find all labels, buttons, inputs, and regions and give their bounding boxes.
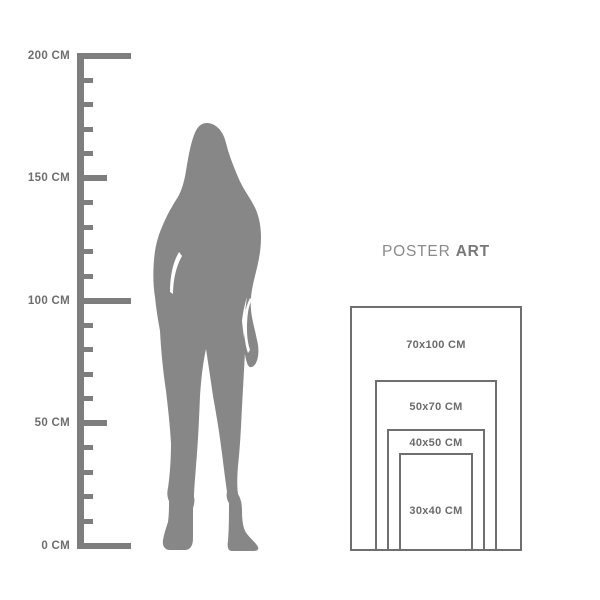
poster-size-label-30x40: 30x40 CM [399, 504, 472, 519]
poster-frame-30x40 [399, 453, 472, 551]
ruler-tick-120cm [77, 249, 93, 254]
ruler-tick-180cm [77, 102, 93, 107]
brand-wordmark: POSTER ART [336, 243, 536, 260]
ruler-tick-0cm [77, 543, 131, 549]
ruler-tick-60cm [77, 396, 93, 401]
ruler-label-50cm: 50 CM [0, 415, 70, 431]
ruler-tick-110cm [77, 274, 93, 279]
poster-size-label-50x70: 50x70 CM [375, 400, 497, 415]
ruler-tick-140cm [77, 200, 93, 205]
poster-size-label-40x50: 40x50 CM [387, 436, 485, 451]
ruler-tick-90cm [77, 323, 93, 328]
brand-word-poster: POSTER [382, 243, 451, 260]
ruler-tick-150cm [77, 175, 107, 181]
ruler-tick-20cm [77, 494, 93, 499]
ruler-tick-200cm [77, 53, 131, 59]
ruler-tick-100cm [77, 298, 131, 304]
ruler-label-200cm: 200 CM [0, 48, 70, 64]
ruler-tick-170cm [77, 127, 93, 132]
ruler-tick-190cm [77, 78, 93, 83]
ruler-tick-30cm [77, 470, 93, 475]
ruler-label-0cm: 0 CM [0, 538, 70, 554]
poster-size-guide: 200 CM150 CM100 CM50 CM0 CM POSTER ART 7… [0, 0, 600, 600]
woman-silhouette [150, 120, 264, 554]
ruler-tick-70cm [77, 372, 93, 377]
poster-size-label-70x100: 70x100 CM [350, 338, 521, 353]
ruler-tick-130cm [77, 225, 93, 230]
brand-word-art: ART [456, 243, 490, 260]
ruler-tick-10cm [77, 519, 93, 524]
ruler-label-100cm: 100 CM [0, 293, 70, 309]
ruler-tick-50cm [77, 420, 107, 426]
ruler-tick-80cm [77, 347, 93, 352]
ruler-tick-160cm [77, 151, 93, 156]
ruler-label-150cm: 150 CM [0, 170, 70, 186]
ruler-tick-40cm [77, 445, 93, 450]
